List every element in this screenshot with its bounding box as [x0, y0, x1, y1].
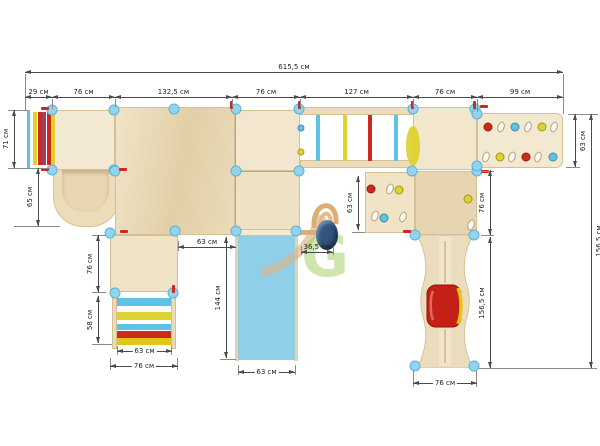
dimension-label: 63 см [346, 193, 354, 213]
dimension: 156,5 см [588, 114, 595, 368]
dimension: 76 см [232, 94, 300, 101]
dimension: 156,5 см [487, 237, 494, 368]
edge-peg-rung_blue [298, 125, 305, 132]
dimension-arrow [356, 176, 360, 182]
climbing-hold-rung_blue [511, 123, 520, 132]
dimension: 36,5 см [301, 249, 333, 256]
dimension-arrow [36, 220, 40, 226]
dimension-label: 63 см [132, 347, 156, 355]
climbing-hold-red [522, 153, 531, 162]
dimension-line [98, 235, 99, 292]
dimension: 76 см [95, 235, 102, 292]
climbing-hold-yellow [395, 186, 404, 195]
corner-post [109, 105, 120, 116]
climbing-hole [507, 151, 517, 164]
dimension-arrow [471, 381, 477, 385]
dimension-label: 76 см [256, 88, 276, 96]
dimension: 76 см [413, 94, 477, 101]
dimension-label: 99 см [510, 88, 530, 96]
dimension-arrow [488, 170, 492, 176]
left-ladder-rail [27, 110, 30, 168]
playground-dimension-drawing: G 615,5 см29 см76 см132,5 см76 см127 см7… [0, 0, 600, 446]
climbing-hold-red [484, 123, 493, 132]
dimension-arrow [557, 70, 563, 74]
dimension-label: 63 см [197, 238, 217, 246]
dimension-arrow [96, 337, 100, 343]
dimension-arrow [413, 381, 419, 385]
dimension-arrow [232, 95, 238, 99]
dimension-label: 63 см [254, 368, 278, 376]
red-marker [41, 107, 49, 110]
bottom-ladder-rung-gold [117, 338, 171, 345]
dimension: 144 см [223, 237, 230, 358]
dimension-arrow [488, 362, 492, 368]
dimension-label: 76 см [435, 88, 455, 96]
dimension-line [38, 168, 39, 226]
dimension: 63 см [117, 348, 172, 355]
dimension-arrow [589, 114, 593, 120]
dimension-arrow [300, 95, 306, 99]
bottom-ladder-rung-yellow [117, 312, 171, 320]
dimension-label: 76 см [433, 379, 457, 387]
tunnel-module [413, 235, 477, 368]
dimension-arrow [589, 362, 593, 368]
dimension-arrow [413, 95, 419, 99]
extension-line [295, 365, 296, 375]
dimension-arrow [488, 229, 492, 235]
dimension-arrow [289, 370, 295, 374]
dimension: 615,5 см [25, 69, 563, 76]
dimension-arrow [230, 245, 236, 249]
dimension-label: 65 см [26, 187, 34, 207]
dimension-arrow [96, 286, 100, 292]
climbing-hole [398, 211, 408, 224]
dimension: 132,5 см [115, 94, 232, 101]
dimension-line [300, 97, 413, 98]
dimension-arrow [488, 237, 492, 243]
dimension: 63 см [572, 114, 579, 167]
dimension-line [413, 97, 477, 98]
extension-line [8, 168, 50, 169]
climbing-hole [549, 121, 559, 134]
dimension: 76 см [413, 380, 477, 387]
left-ladder-rung-red [47, 112, 51, 165]
climbing-hold-rung_blue [549, 153, 558, 162]
dimension: 76 см [110, 363, 178, 370]
climbing-hole [496, 121, 506, 134]
dimension-arrow [172, 364, 178, 368]
dimension: 76 см [52, 94, 115, 101]
bridge-rung-rung_blue [394, 115, 398, 161]
dimension-arrow [96, 235, 100, 241]
dimension-line [490, 170, 491, 235]
corner-post [291, 226, 302, 237]
red-marker [480, 105, 488, 108]
bridge-rung-yellow [343, 115, 347, 161]
dimension-label: 36,5 см [304, 243, 331, 251]
climbing-hold-red [367, 185, 376, 194]
left-ladder-rung-red [38, 112, 42, 165]
dimension-arrow [36, 168, 40, 174]
dimension-arrow [52, 95, 58, 99]
bottom-ladder-rung-rung_blue [117, 298, 171, 306]
bottom-ladder-rung-rung_blue [117, 324, 171, 330]
bottom-ladder-rung-red [117, 331, 171, 338]
climbing-hold-yellow [538, 123, 547, 132]
climbing-hole [523, 121, 533, 134]
dimension-label: 132,5 см [158, 88, 189, 96]
dimension-arrow [12, 110, 16, 116]
left-ladder-rung-yellow [51, 112, 55, 165]
corner-post [231, 226, 242, 237]
left-ladder-rung-yellow [33, 112, 37, 165]
extension-line [566, 167, 580, 168]
dimension-label: 615,5 см [278, 63, 309, 71]
dimension-arrow [224, 237, 228, 243]
dimension-label: 156,5 см [595, 225, 600, 256]
dimension: 76 см [487, 170, 494, 235]
extension-line [25, 74, 26, 110]
extension-line [333, 246, 334, 255]
extension-line [220, 359, 236, 360]
dimension-arrow [238, 370, 244, 374]
dimension-arrow [96, 296, 100, 302]
dimension: 71 см [11, 110, 18, 168]
dimension: 29 см [25, 94, 52, 101]
corner-post [410, 361, 421, 372]
dimension-line [52, 97, 115, 98]
dimension-arrow [166, 349, 172, 353]
dimension: 58 см [95, 296, 102, 343]
dimension-line [490, 237, 491, 368]
dimension-line [591, 114, 592, 368]
edge-peg-yellow [298, 149, 305, 156]
dimension-arrow [573, 114, 577, 120]
corner-post [231, 166, 242, 177]
extension-line [352, 232, 365, 233]
extension-line [92, 292, 106, 293]
dimension-label: 29 см [28, 88, 48, 96]
dimension-label: 76 см [86, 253, 94, 273]
dimension-line [575, 114, 576, 167]
corner-post [469, 361, 480, 372]
dimension-label: 76 см [132, 362, 156, 370]
dimension-line [358, 176, 359, 230]
corner-post [110, 288, 121, 299]
dimension-line [98, 296, 99, 343]
corner-post [169, 104, 180, 115]
dimension-line [115, 97, 232, 98]
corner-post [294, 166, 305, 177]
dimension-line [477, 97, 563, 98]
dimension-label: 144 см [214, 285, 222, 310]
dimension-label: 76 см [73, 88, 93, 96]
climbing-hold-yellow [496, 153, 505, 162]
dimension-arrow [12, 162, 16, 168]
dimension-label: 76 см [478, 192, 486, 212]
red-marker [172, 285, 175, 293]
corner-post [105, 228, 116, 239]
red-marker [120, 230, 128, 233]
dimension-label: 58 см [86, 309, 94, 329]
bridge-rung-rung_blue [316, 115, 320, 161]
extension-line [563, 74, 564, 114]
dimension-label: 127 см [344, 88, 369, 96]
dimension-arrow [110, 364, 116, 368]
dimension-line [14, 110, 15, 168]
red-marker [473, 101, 476, 109]
climbing-hole [533, 151, 543, 164]
climbing-hold-yellow [464, 195, 473, 204]
corner-post [410, 230, 421, 241]
dimension-line [232, 97, 300, 98]
dimension-arrow [117, 349, 123, 353]
red-marker [403, 230, 411, 233]
dimension: 127 см [300, 94, 413, 101]
corner-post [170, 226, 181, 237]
dimension-arrow [356, 224, 360, 230]
extension-line [479, 368, 597, 369]
dimension-label: 63 см [579, 130, 587, 150]
extension-line [92, 344, 112, 345]
dimension: 65 см [35, 168, 42, 226]
dimension-label: 156,5 см [478, 287, 486, 318]
corner-post [469, 230, 480, 241]
dimension-line [25, 72, 563, 73]
red-marker [119, 168, 127, 171]
dimension: 63 см [355, 176, 362, 230]
corner-post [407, 166, 418, 177]
dimension-arrow [25, 70, 31, 74]
climbing-hole [481, 151, 491, 164]
dimension-arrow [178, 245, 184, 249]
left-ladder-rung-maroon [42, 112, 46, 165]
dimension-arrow [115, 95, 121, 99]
dimension-arrow [224, 352, 228, 358]
dimension-arrow [557, 95, 563, 99]
dimension: 63 см [238, 369, 295, 376]
dimension-arrow [573, 161, 577, 167]
bridge-rung-red [368, 115, 372, 161]
extension-line [481, 235, 494, 236]
climbing-hold-rung_blue [380, 214, 389, 223]
dimension-arrow [477, 95, 483, 99]
dimension-label: 71 см [2, 129, 10, 149]
dimension: 99 см [477, 94, 563, 101]
extension-line [14, 226, 60, 227]
dimension-line [226, 237, 227, 358]
